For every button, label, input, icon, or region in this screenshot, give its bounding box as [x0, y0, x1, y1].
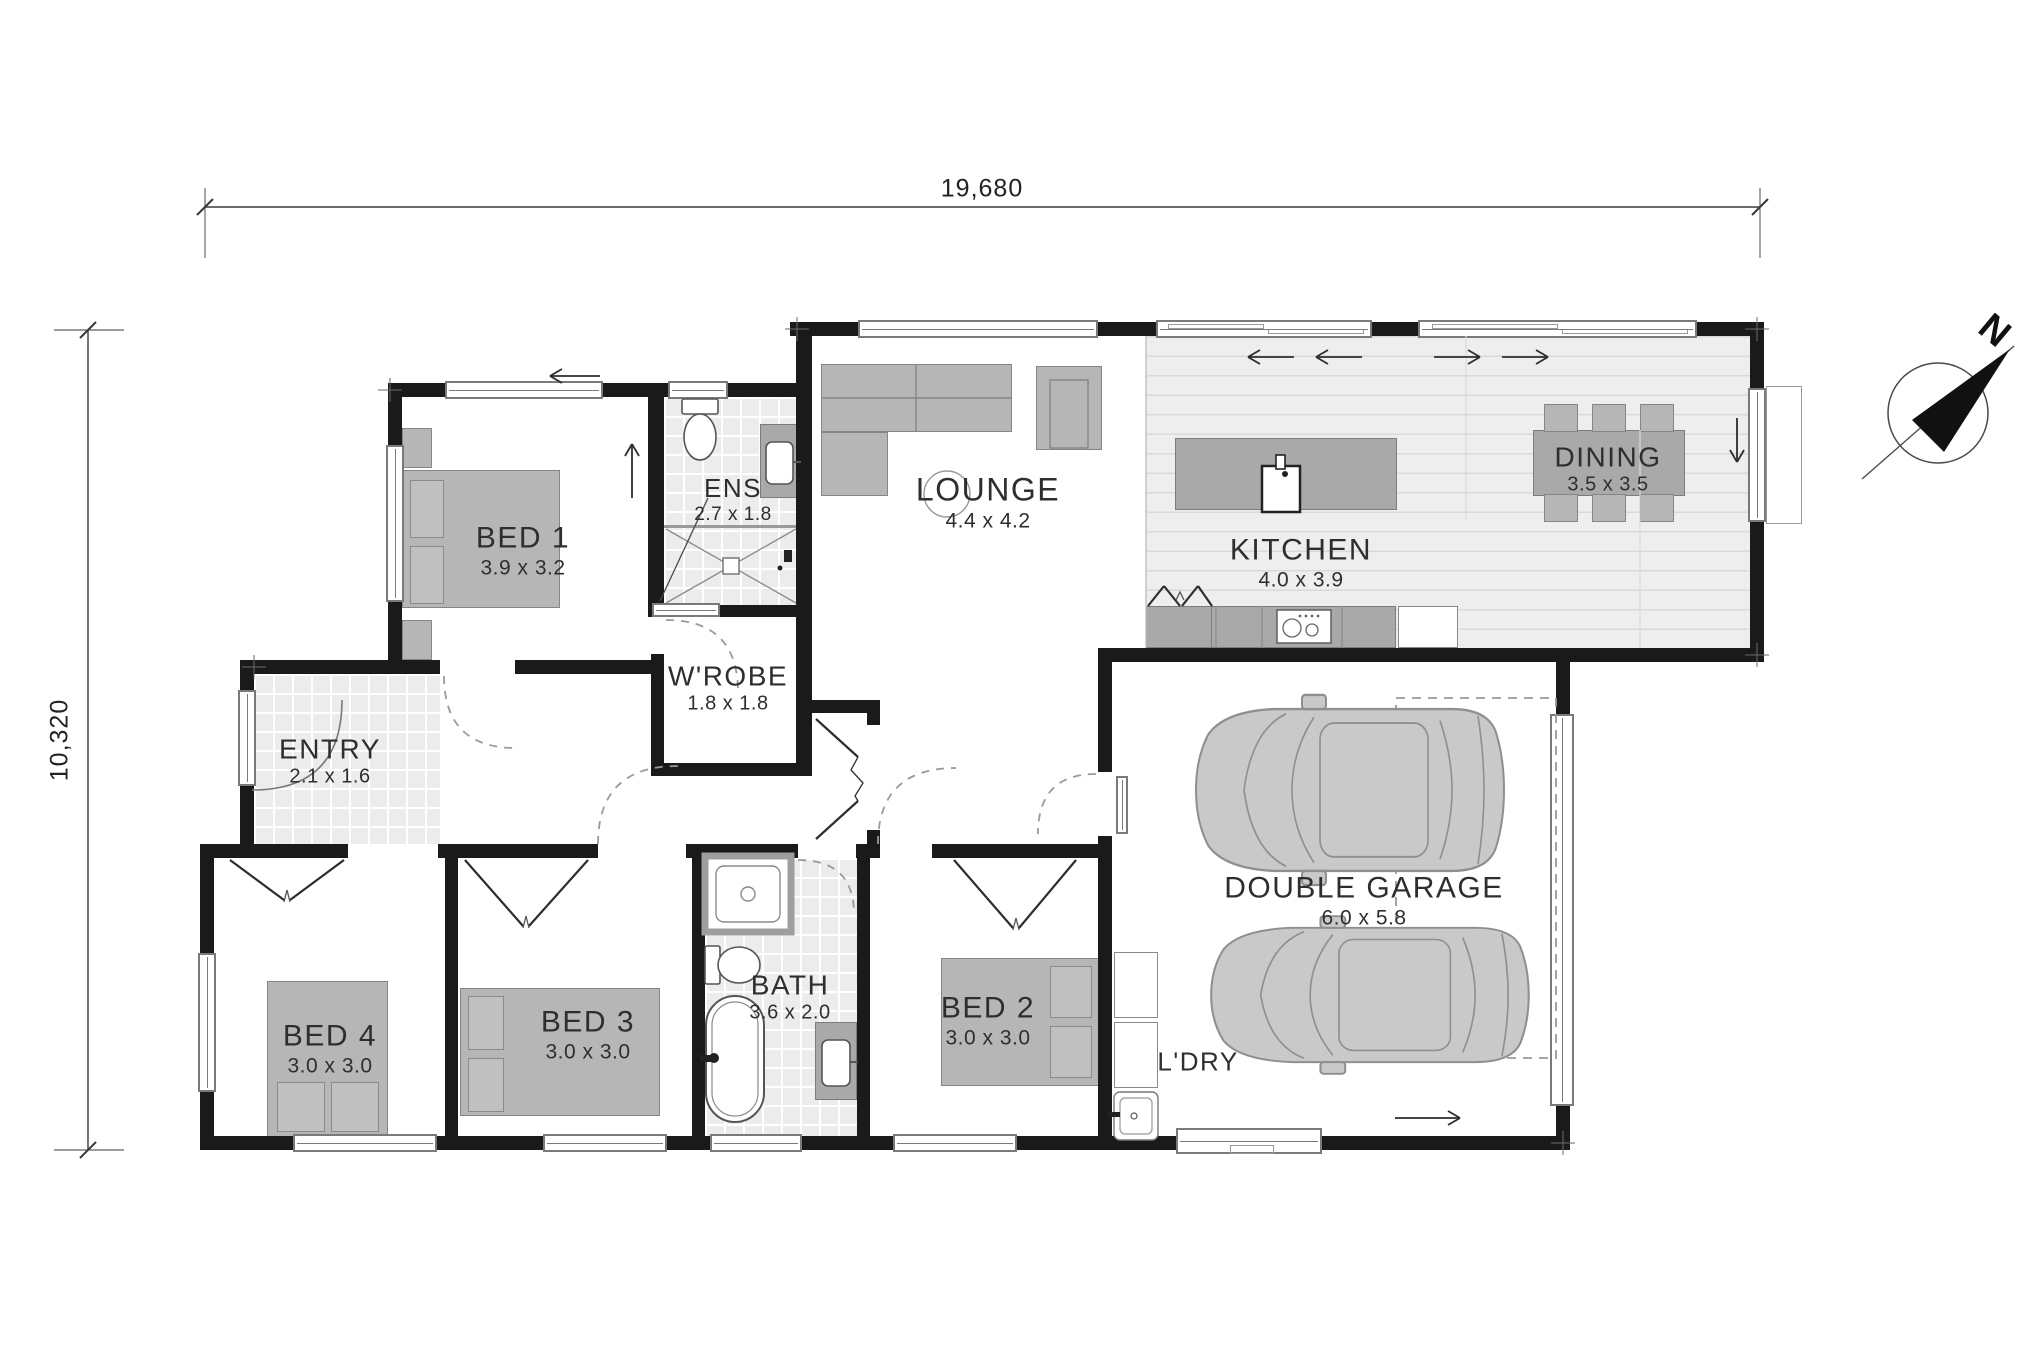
dining-dims: 3.5 x 3.5 [1555, 475, 1662, 496]
ens-name: ENS [694, 475, 771, 502]
room-label-ens: ENS 2.7 x 1.8 [694, 475, 771, 525]
shower-head-icon [784, 550, 792, 562]
room-label-bath: BATH 3.6 x 2.0 [749, 970, 830, 1023]
bed3-dims: 3.0 x 3.0 [541, 1041, 635, 1063]
ens-dims: 2.7 x 1.8 [694, 505, 771, 525]
dining-name: DINING [1555, 442, 1662, 471]
room-label-garage: DOUBLE GARAGE 6.0 x 5.8 [1224, 873, 1504, 930]
room-label-bed3: BED 3 3.0 x 3.0 [541, 1007, 635, 1064]
bed2-dims: 3.0 x 3.0 [941, 1027, 1035, 1049]
ensuite-shower [666, 529, 796, 603]
overall-depth-dimension: 10,320 [46, 699, 75, 781]
garage-name: DOUBLE GARAGE [1224, 873, 1504, 905]
lounge-name: LOUNGE [916, 474, 1060, 508]
bed3-name: BED 3 [541, 1007, 635, 1039]
hall-double-doors [816, 719, 863, 839]
bath-basin [822, 1040, 850, 1086]
bath-dims: 3.6 x 2.0 [749, 1003, 830, 1024]
kitchen-dims: 4.0 x 3.9 [1230, 569, 1372, 591]
room-label-bed1: BED 1 3.9 x 3.2 [476, 523, 570, 580]
floor-plan: 19,680 10,320 N BED 1 3.9 x 3.2 ENS 2.7 … [0, 0, 2032, 1355]
room-label-dining: DINING 3.5 x 3.5 [1555, 442, 1662, 495]
lounge-dims: 4.4 x 4.2 [916, 510, 1060, 532]
bath-name: BATH [749, 970, 830, 999]
furniture-detail-lines [821, 364, 1088, 448]
car-2 [1211, 916, 1529, 1074]
room-label-bed4: BED 4 3.0 x 3.0 [283, 1021, 377, 1078]
cooktop [1277, 610, 1331, 643]
bed1-name: BED 1 [476, 523, 570, 555]
car-1 [1196, 695, 1504, 885]
bath-shower-tray [705, 856, 791, 932]
bath-tap-icon [709, 1053, 719, 1063]
room-label-ldry: L'DRY [1157, 1048, 1238, 1075]
bed4-dims: 3.0 x 3.0 [283, 1055, 377, 1077]
entry-dims: 2.1 x 1.6 [279, 767, 381, 788]
room-label-entry: ENTRY 2.1 x 1.6 [279, 734, 381, 787]
room-label-kitchen: KITCHEN 4.0 x 3.9 [1230, 535, 1372, 592]
wrobe-name: W'ROBE [668, 661, 788, 690]
bed4-name: BED 4 [283, 1021, 377, 1053]
compass [1862, 346, 2014, 479]
island-faucet-icon [1276, 455, 1285, 469]
kitchen-name: KITCHEN [1230, 535, 1372, 567]
island-sink [1262, 466, 1300, 512]
overall-width-dimension: 19,680 [941, 175, 1023, 204]
bed1-dims: 3.9 x 3.2 [476, 557, 570, 579]
ensuite-toilet-bowl [684, 414, 716, 460]
bed2-name: BED 2 [941, 993, 1035, 1025]
ldry-name: L'DRY [1157, 1048, 1238, 1075]
room-label-bed2: BED 2 3.0 x 3.0 [941, 993, 1035, 1050]
entry-name: ENTRY [279, 734, 381, 763]
wrobe-dims: 1.8 x 1.8 [668, 694, 788, 715]
garage-dims: 6.0 x 5.8 [1224, 907, 1504, 929]
room-label-wrobe: W'ROBE 1.8 x 1.8 [668, 661, 788, 714]
ensuite-toilet-tank [682, 399, 718, 414]
room-label-lounge: LOUNGE 4.4 x 4.2 [916, 474, 1060, 533]
laundry-tap-icon [1108, 1112, 1120, 1117]
